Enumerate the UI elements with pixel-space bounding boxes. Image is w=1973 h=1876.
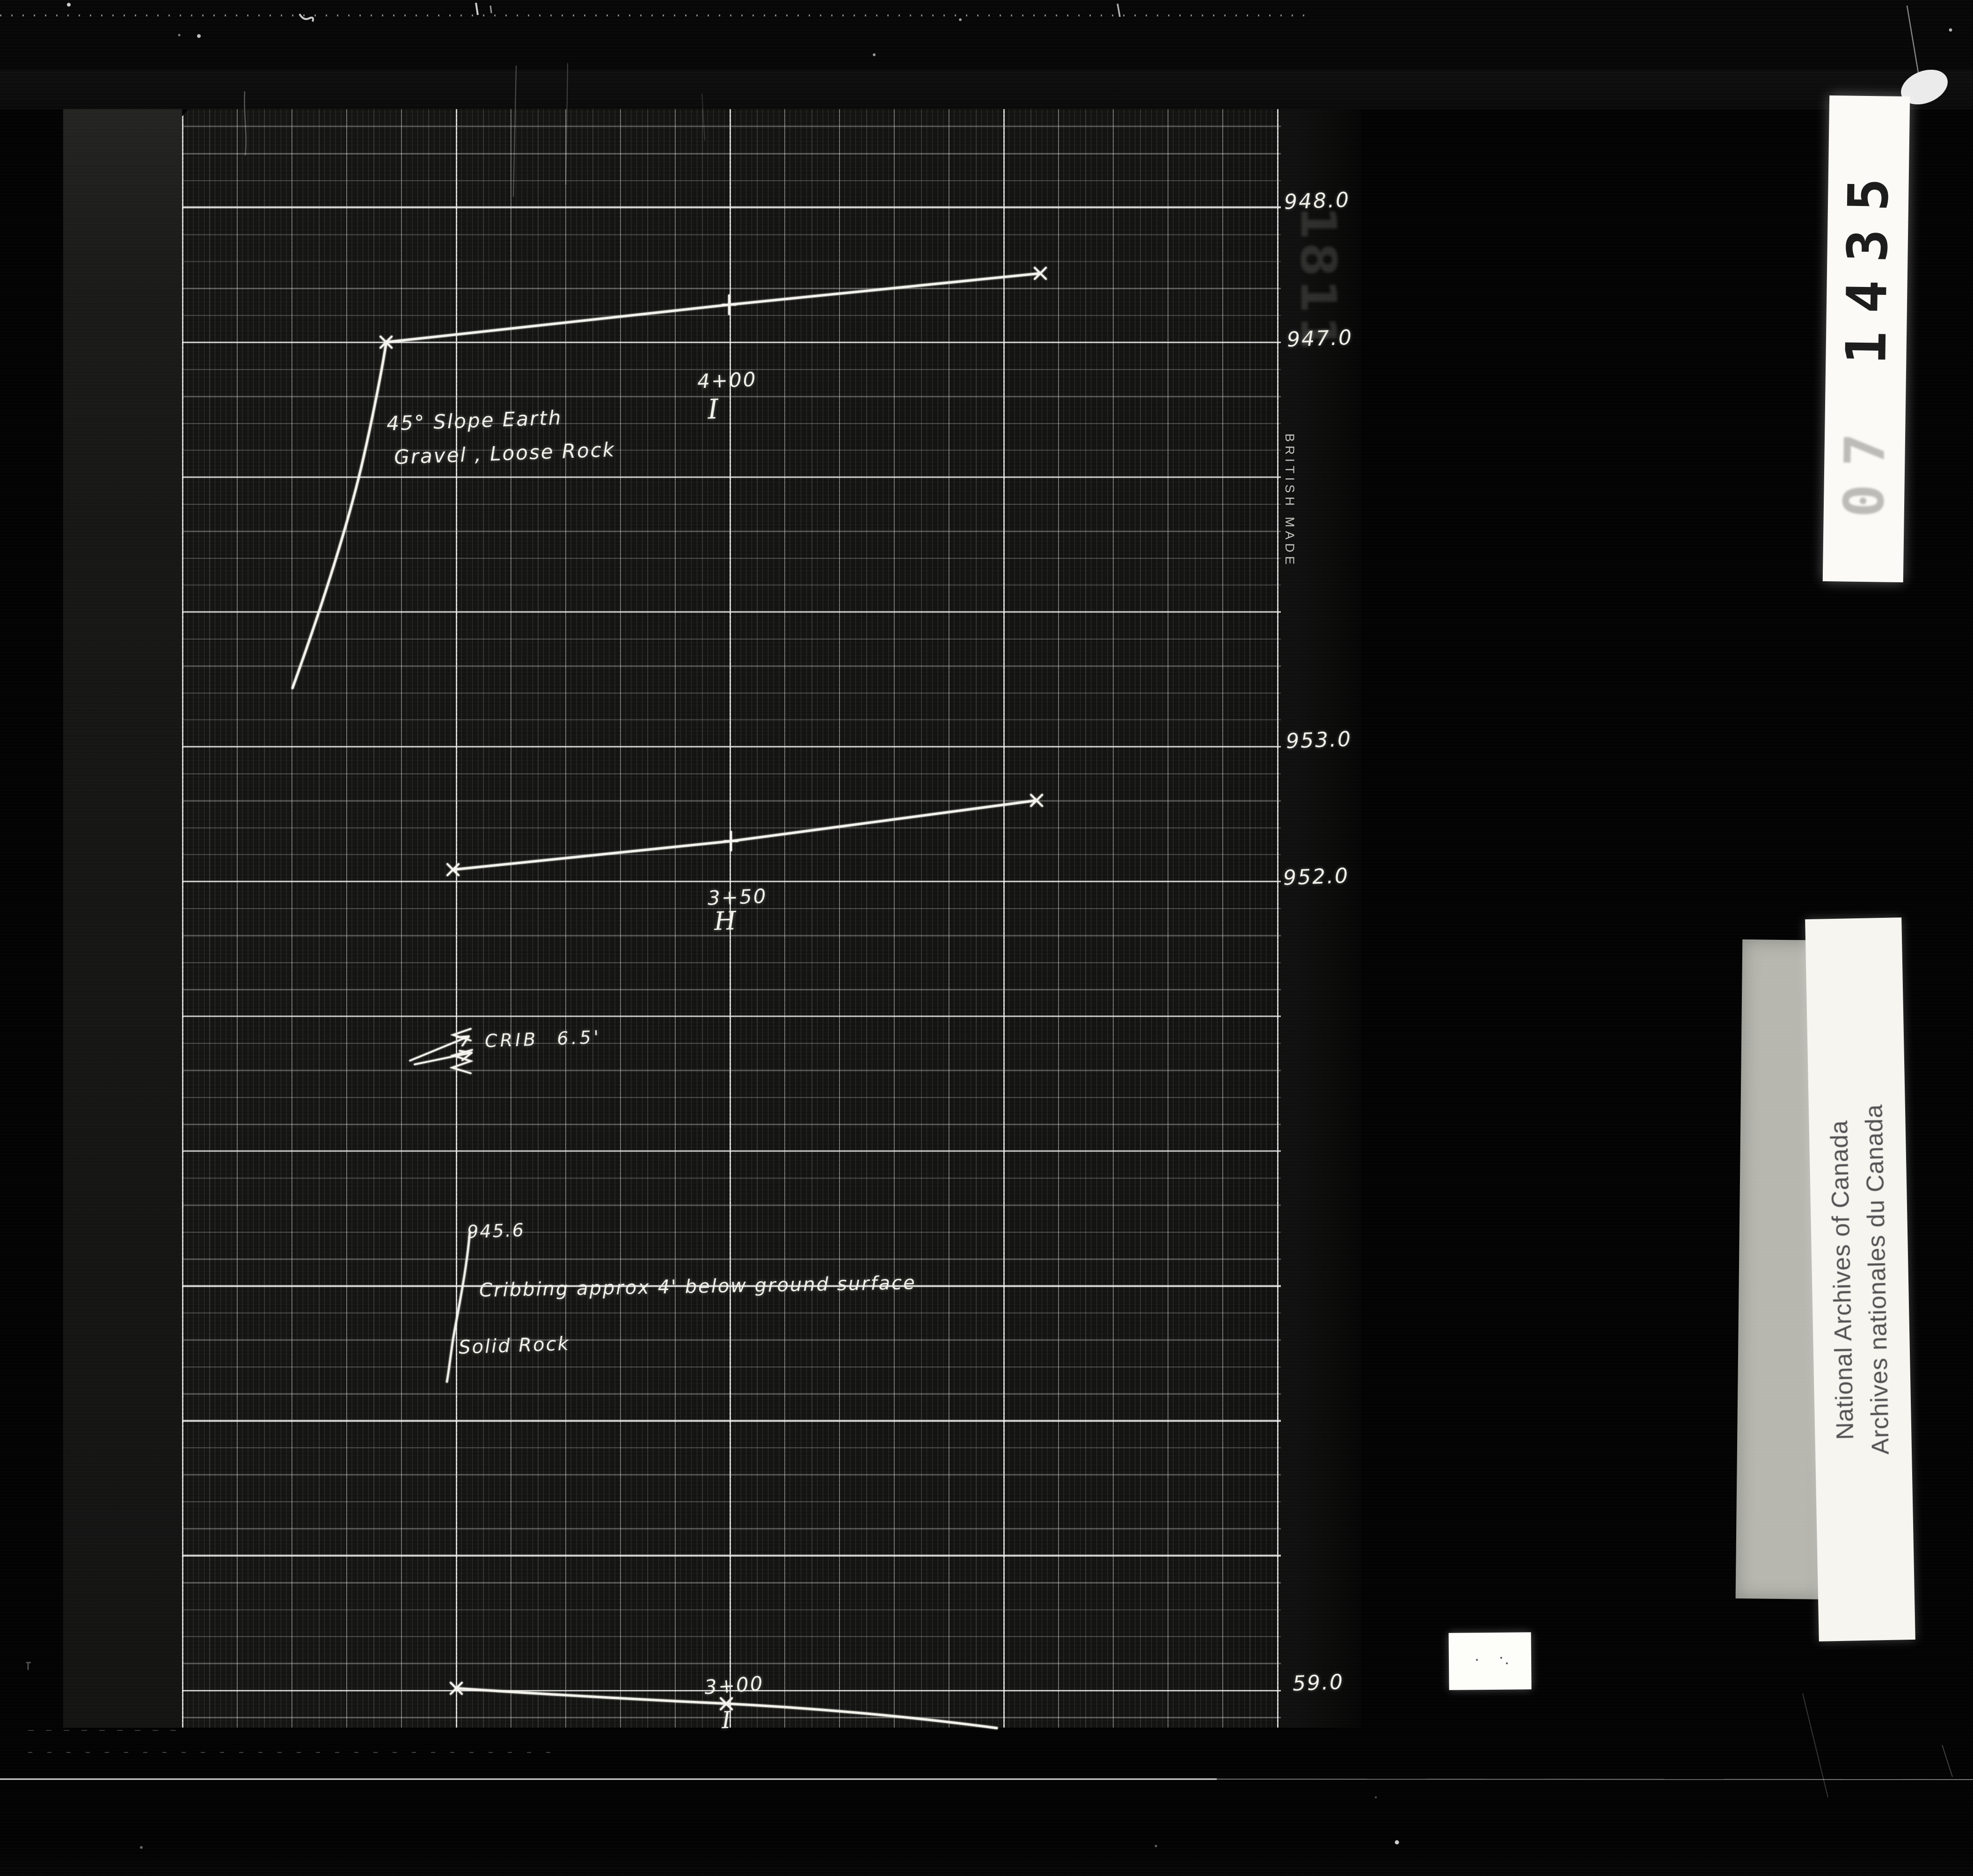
- station-label-3-00: 3+00: [703, 1672, 764, 1699]
- film-dust-specks: [67, 3, 1952, 1849]
- data-point-markers: [380, 268, 1046, 1709]
- archives-stamp-line2: Archives nationales du Canada: [1857, 1104, 1899, 1455]
- british-made-edge-print: BRITISH MADE: [1282, 433, 1297, 568]
- profile-line-sta-4-00-slope: [292, 343, 386, 688]
- elevation-label-59: 59.0: [1292, 1670, 1345, 1696]
- speck: [1500, 1657, 1502, 1659]
- faint-number-stamp: 1811: [1290, 206, 1347, 352]
- elevation-label-952: 952.0: [1283, 864, 1350, 890]
- profile-drawing-layer: [0, 0, 1973, 1876]
- archive-label-strip-stamped: National Archives of Canada Archives nat…: [1805, 917, 1915, 1641]
- station-label-3-50: 3+50: [707, 885, 767, 909]
- crib-leader-arrows: [410, 1029, 472, 1073]
- station-label-4-00: 4+00: [697, 368, 757, 393]
- station-tick-3-00: I: [721, 1707, 733, 1734]
- annotation-solid-rock: Solid Rock: [458, 1333, 570, 1358]
- annotation-crib: CRIB 6.5': [484, 1027, 602, 1052]
- elevation-label-953: 953.0: [1286, 727, 1352, 754]
- microfilm-scan: { "document": { "description": "Photogra…: [0, 0, 1973, 1876]
- film-id-number: 07 1435: [1832, 160, 1901, 518]
- small-white-label-box: [1448, 1632, 1531, 1690]
- station-tick-4-00: I: [707, 393, 720, 425]
- film-id-prefix: 07: [1832, 415, 1898, 518]
- film-id-digits: 1435: [1834, 160, 1901, 365]
- cribbing-profile-line: [447, 1232, 470, 1382]
- archives-stamp-line1: National Archives of Canada: [1821, 1104, 1863, 1455]
- speck: [1506, 1663, 1508, 1664]
- film-id-box: 07 1435: [1823, 95, 1910, 582]
- annotation-crib-elevation: 945.6: [467, 1220, 525, 1242]
- profile-line-sta-4-00: [386, 273, 1040, 342]
- national-archives-stamp: National Archives of Canada Archives nat…: [1821, 1104, 1899, 1456]
- profile-line-sta-3-50: [453, 800, 1037, 870]
- film-frame-lines: [0, 1730, 1973, 1780]
- station-tick-3-50: H: [714, 906, 738, 936]
- film-scratches: [26, 3, 1952, 1797]
- speck: [1476, 1659, 1478, 1661]
